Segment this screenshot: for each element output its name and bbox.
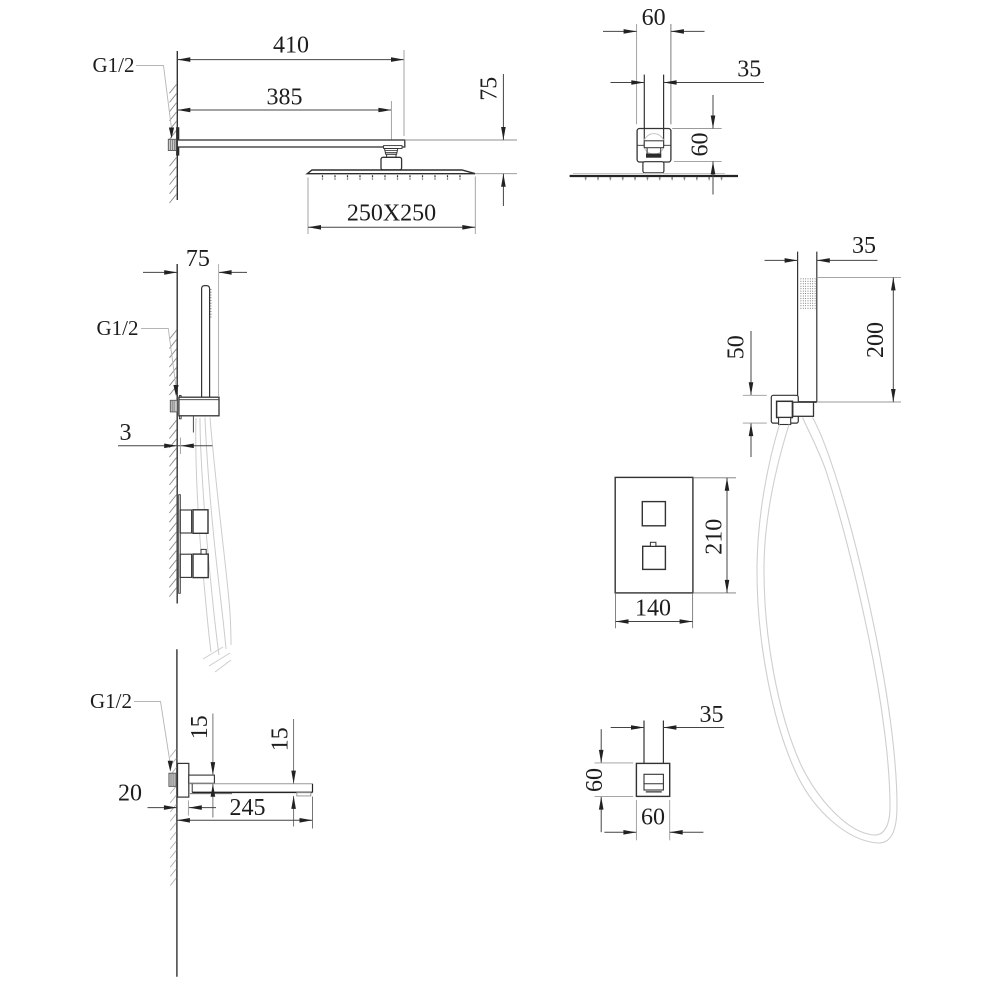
- svg-text:250X250: 250X250: [347, 201, 436, 227]
- svg-text:35: 35: [852, 233, 876, 259]
- svg-text:G1/2: G1/2: [97, 316, 139, 340]
- svg-text:20: 20: [118, 780, 142, 806]
- svg-text:G1/2: G1/2: [93, 53, 135, 77]
- svg-text:G1/2: G1/2: [90, 689, 132, 713]
- svg-text:15: 15: [268, 727, 294, 751]
- svg-text:3: 3: [120, 420, 132, 446]
- svg-text:385: 385: [267, 85, 303, 111]
- svg-text:410: 410: [273, 33, 309, 59]
- svg-text:140: 140: [635, 596, 671, 622]
- svg-text:60: 60: [582, 768, 608, 792]
- svg-text:75: 75: [477, 77, 503, 101]
- svg-text:200: 200: [863, 322, 889, 358]
- svg-text:210: 210: [701, 519, 727, 555]
- svg-text:35: 35: [700, 702, 724, 728]
- svg-text:245: 245: [230, 795, 266, 821]
- svg-text:60: 60: [642, 5, 666, 31]
- svg-text:60: 60: [688, 133, 714, 157]
- svg-text:60: 60: [641, 805, 665, 831]
- svg-text:15: 15: [187, 715, 213, 739]
- svg-text:35: 35: [737, 56, 761, 82]
- svg-text:50: 50: [723, 335, 749, 359]
- svg-text:75: 75: [186, 246, 210, 272]
